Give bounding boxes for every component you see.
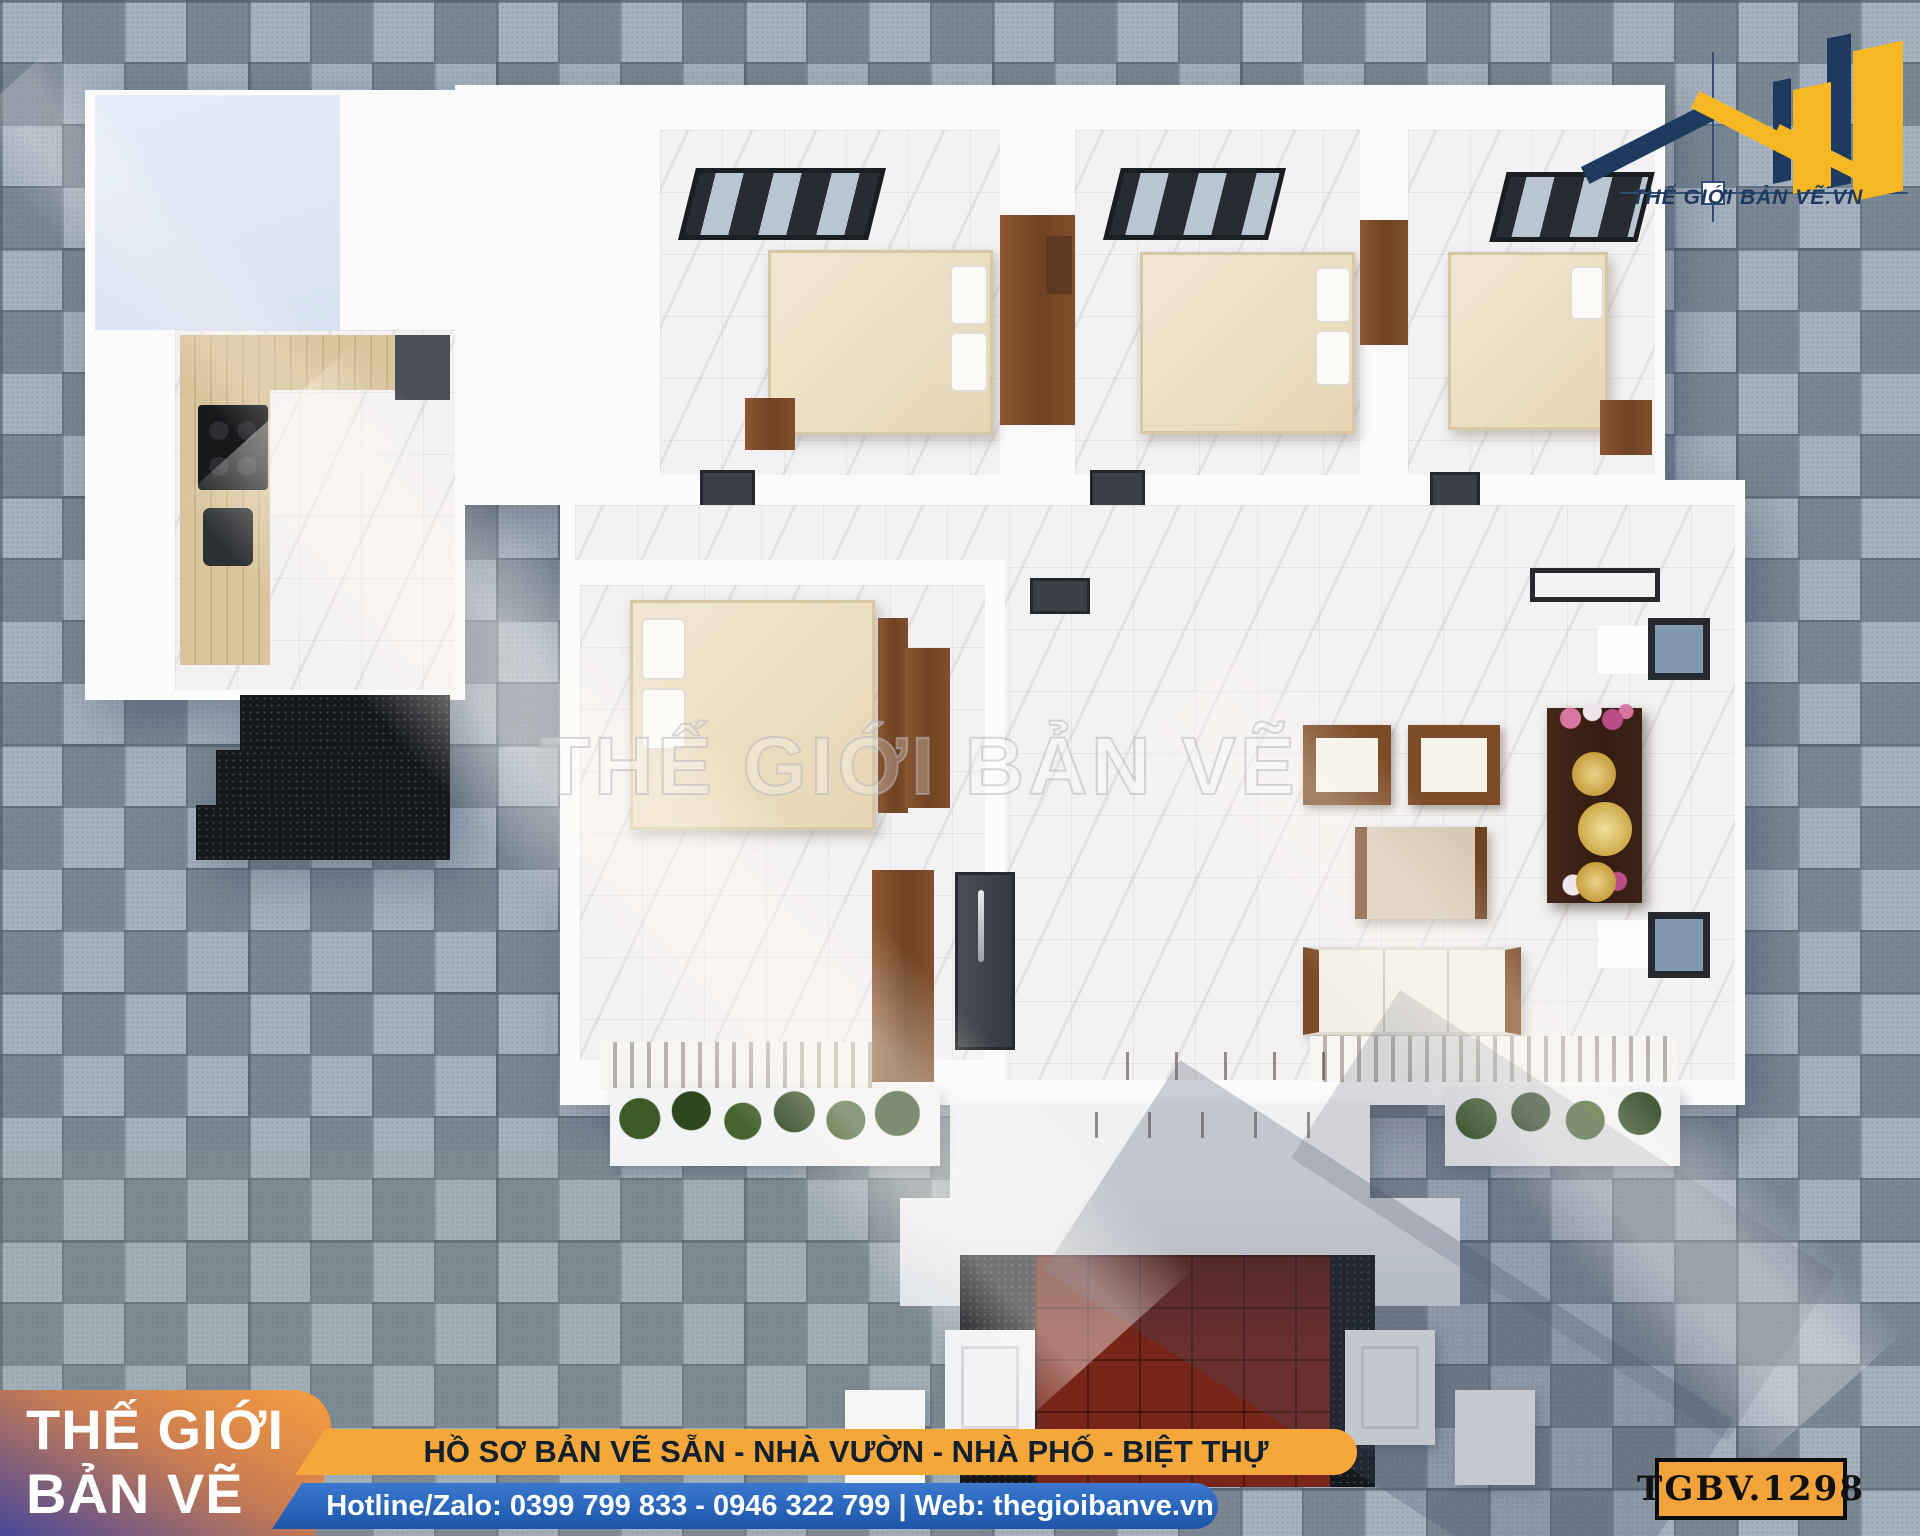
hall-threshold-wood	[1080, 1052, 1360, 1080]
bedroom1-bench	[745, 398, 795, 450]
logo-text: THẾ GIỚI BẢN VẼ.VN	[1575, 186, 1920, 210]
bedroom1-pillow	[950, 265, 988, 325]
product-code-badge: TGBV.1298	[1655, 1458, 1847, 1520]
bedroom3-dresser	[1600, 400, 1652, 455]
footer-brand-line1: THẾ GIỚI	[26, 1398, 326, 1462]
company-logo: THẾ GIỚI BẢN VẼ.VN	[1575, 22, 1920, 217]
watermark-text: THẾ GIỚI BẢN VẼ	[540, 720, 1300, 814]
bedroom1-pillow	[950, 332, 988, 392]
hall-wall-vent	[1030, 578, 1090, 614]
footer-brand-text: THẾ GIỚI BẢN VẼ	[26, 1398, 326, 1526]
bedroom2-pillow	[1315, 330, 1351, 386]
bedroom2-pillow	[1315, 267, 1351, 323]
bedroom1-window	[678, 168, 886, 240]
flower-bouquet	[1552, 694, 1636, 738]
black-steps-3	[196, 805, 450, 860]
footer-contact-band: Hotline/Zalo: 0399 799 833 - 0946 322 79…	[272, 1483, 1218, 1529]
window-sill	[1598, 626, 1650, 674]
armchair	[1408, 725, 1500, 805]
footer-contact-text: Hotline/Zalo: 0399 799 833 - 0946 322 79…	[272, 1483, 1218, 1529]
door-handle	[978, 890, 984, 962]
wardrobe-br2-br3	[1360, 220, 1408, 345]
wardrobe-shelf	[1046, 236, 1072, 294]
bedroom3-pillow	[1570, 266, 1604, 320]
footer-headline-text: HỒ SƠ BẢN VẼ SẴN - NHÀ VƯỜN - NHÀ PHỐ - …	[295, 1429, 1357, 1475]
bedroom1-door-slot	[700, 470, 755, 510]
window-sill	[1598, 920, 1650, 968]
living-window-top	[1648, 618, 1710, 680]
bedroom2-window	[1103, 168, 1286, 240]
footer-headline-band: HỒ SƠ BẢN VẼ SẴN - NHÀ VƯỜN - NHÀ PHỐ - …	[295, 1429, 1357, 1475]
gold-plate	[1576, 862, 1616, 902]
clerestory-window	[1530, 568, 1660, 602]
floorplan-render-scene: THẾ GIỚI BẢN VẼ THẾ GIỚI BẢN VẼ.VN THẾ G…	[0, 0, 1920, 1536]
gold-plate	[1578, 802, 1632, 856]
gold-plate	[1572, 752, 1616, 796]
living-window-bottom	[1648, 912, 1710, 978]
bedroom2-door-slot	[1090, 470, 1145, 510]
